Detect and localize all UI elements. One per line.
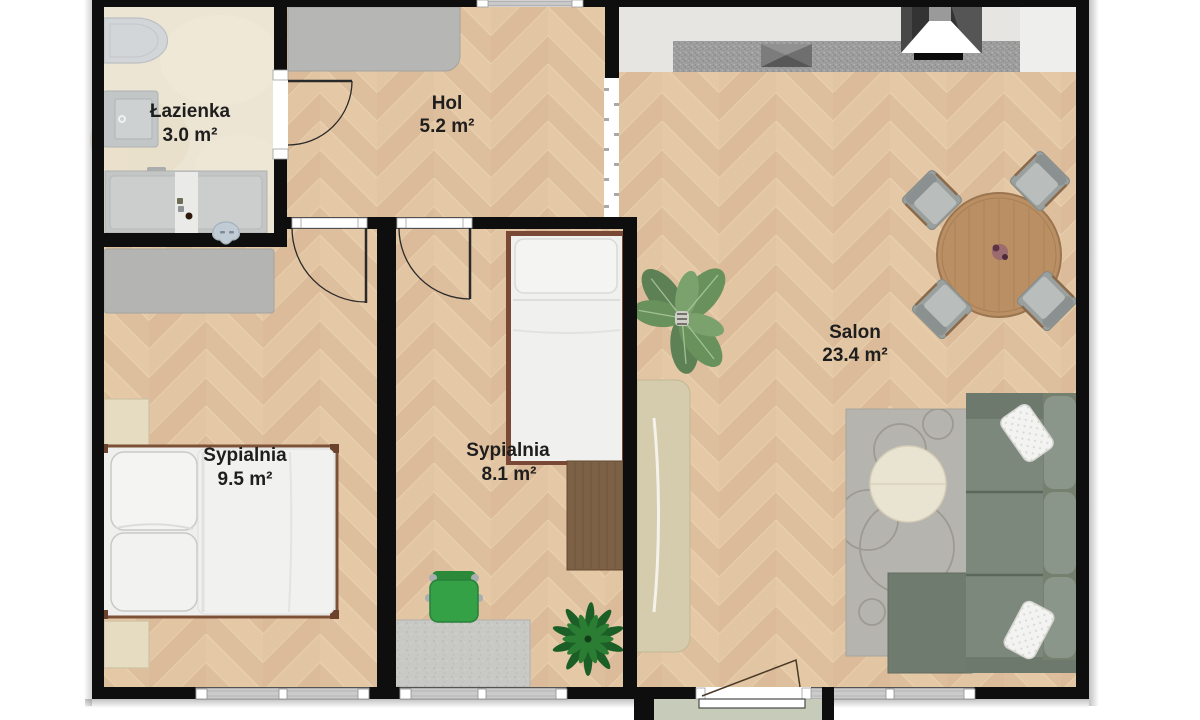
svg-text:23.4 m²: 23.4 m²: [822, 345, 887, 366]
svg-text:Hol: Hol: [432, 93, 463, 114]
svg-text:3.0 m²: 3.0 m²: [163, 125, 218, 146]
svg-text:Sypialnia: Sypialnia: [203, 445, 287, 466]
svg-text:8.1 m²: 8.1 m²: [482, 464, 537, 485]
svg-text:Salon: Salon: [829, 322, 881, 343]
svg-text:Łazienka: Łazienka: [150, 101, 231, 122]
svg-text:Sypialnia: Sypialnia: [466, 440, 550, 461]
svg-text:5.2 m²: 5.2 m²: [420, 116, 475, 137]
svg-text:9.5 m²: 9.5 m²: [218, 469, 273, 490]
